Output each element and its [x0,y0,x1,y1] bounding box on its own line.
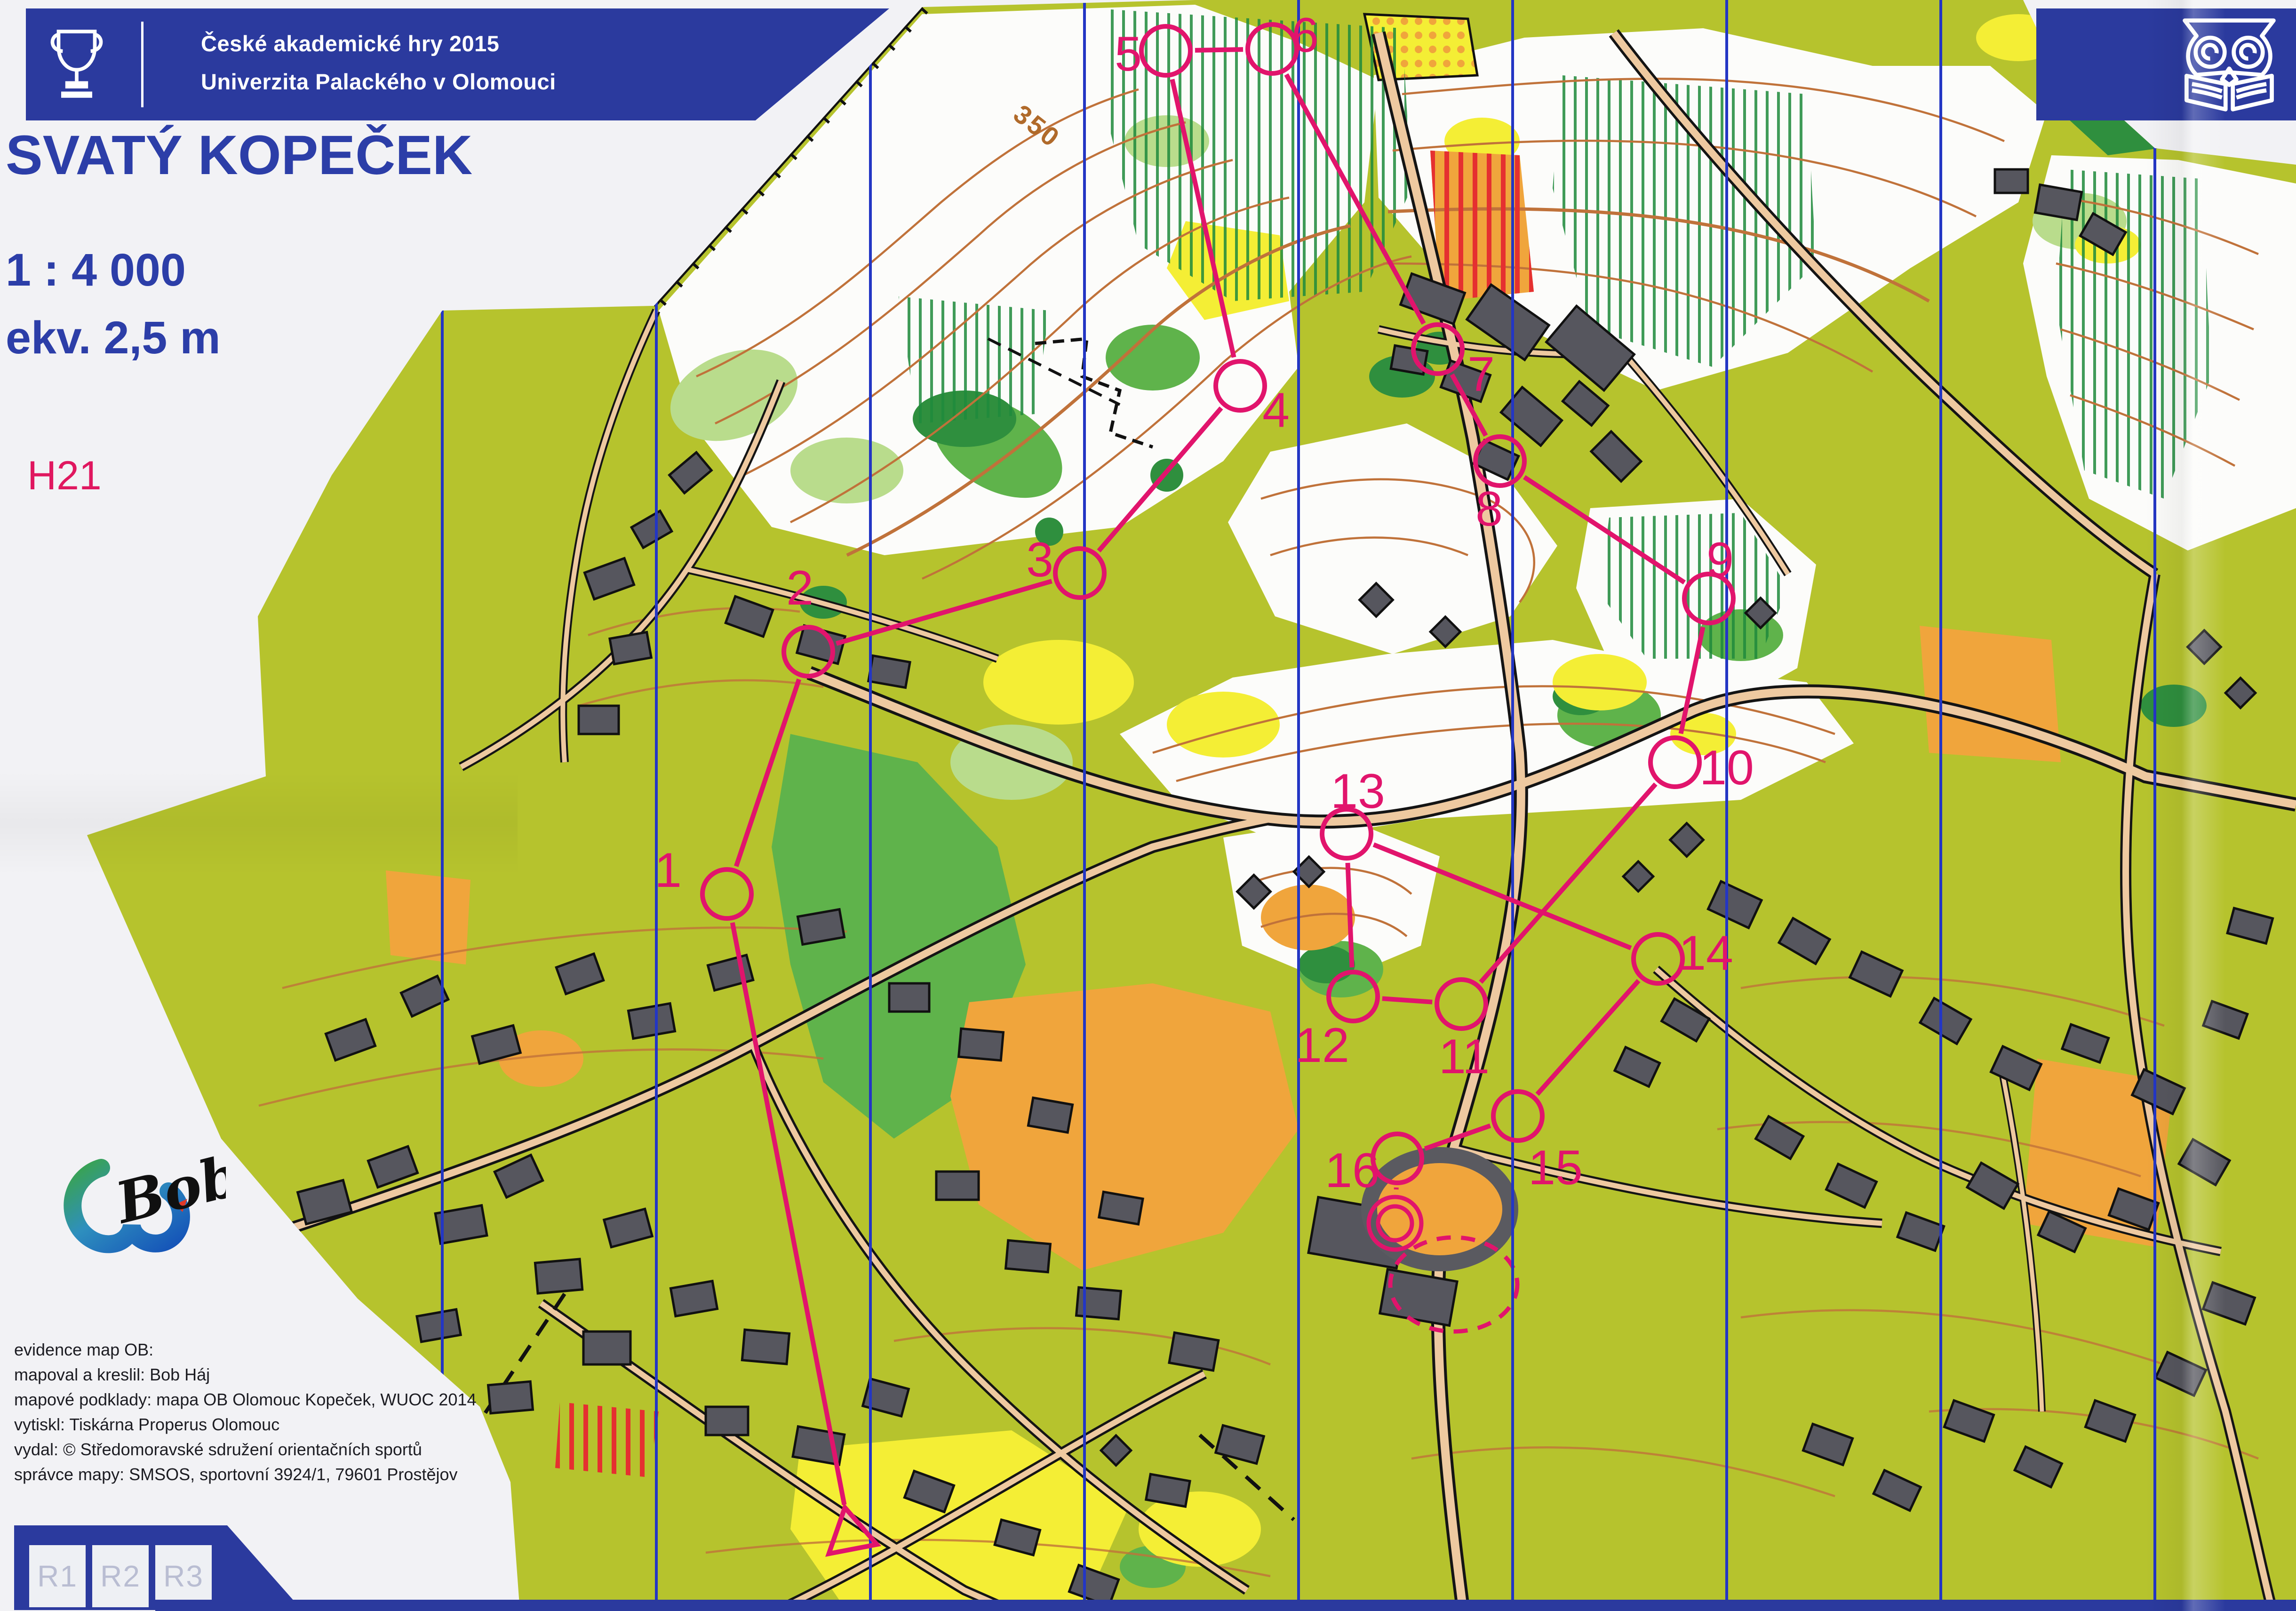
credit-line: vytiskl: Tiskárna Properus Olomouc [14,1412,476,1437]
registration-box-r1: R1 [29,1545,86,1607]
credit-line: mapové podklady: mapa OB Olomouc Kopeček… [14,1387,476,1412]
event-banner: České akademické hry 2015 Univerzita Pal… [26,8,889,120]
banner-divider [141,22,143,107]
control-number-10: 10 [1699,741,1754,795]
control-number-13: 13 [1331,764,1385,819]
bottom-blue-strip [155,1600,2296,1611]
scanned-map-page: 350 [0,0,2296,1611]
credit-line: evidence map OB: [14,1337,476,1362]
control-number-4: 4 [1262,383,1290,438]
credit-line: mapoval a kreslil: Bob Háj [14,1362,476,1387]
mapper-logo-text: Bob [108,1148,226,1237]
control-number-14: 14 [1679,926,1733,981]
control-number-1: 1 [654,843,682,898]
control-number-11: 11 [1439,1029,1490,1084]
control-number-6: 6 [1291,8,1319,63]
course-class-label: H21 [27,453,102,499]
trophy-icon [44,26,110,104]
owl-book-logo [2173,15,2286,115]
mapper-logo: Bob [56,1148,226,1289]
control-number-5: 5 [1115,27,1142,81]
control-number-7: 7 [1467,347,1495,402]
course-leg-5 [1195,49,1243,50]
event-organizer: Univerzita Palackého v Olomouci [201,63,556,101]
control-number-15: 15 [1528,1140,1583,1195]
control-number-9: 9 [1706,533,1734,587]
control-number-16: 16 [1325,1143,1379,1198]
control-number-3: 3 [1026,533,1053,587]
registration-box-r3: R3 [155,1545,212,1607]
credit-line: správce mapy: SMSOS, sportovní 3924/1, 7… [14,1462,476,1487]
map-credits: evidence map OB: mapoval a kreslil: Bob … [14,1337,476,1487]
map-title: SVATÝ KOPEČEK [6,123,472,187]
publisher-banner [2036,8,2296,120]
event-name: České akademické hry 2015 [201,24,556,63]
control-number-12: 12 [1295,1018,1349,1073]
map-equidistance: ekv. 2,5 m [6,311,221,364]
map-scale: 1 : 4 000 [6,244,186,296]
control-number-2: 2 [786,561,813,615]
registration-box-r2: R2 [92,1545,149,1607]
credit-line: vydal: © Středomoravské sdružení orienta… [14,1437,476,1462]
control-number-8: 8 [1475,482,1503,536]
